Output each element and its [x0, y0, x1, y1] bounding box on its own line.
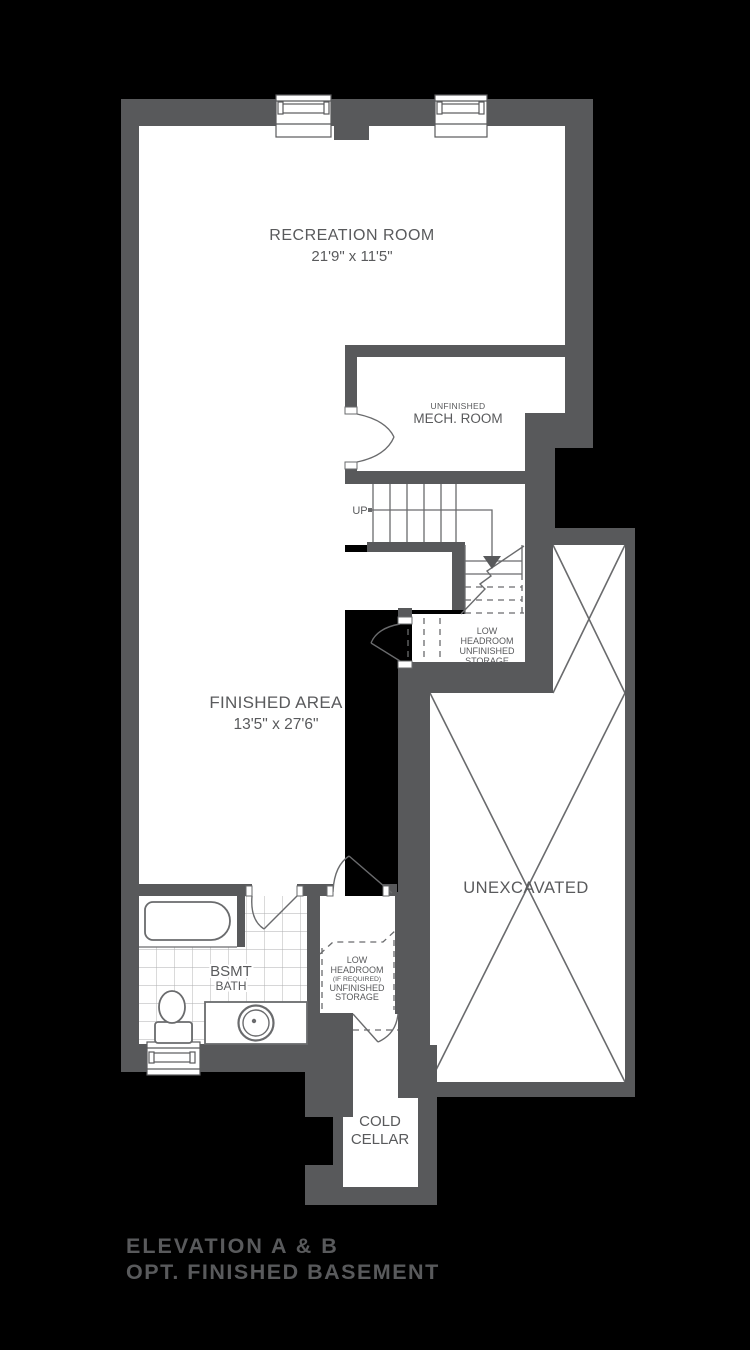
- wall-bath-right: [307, 884, 320, 1014]
- floorplan-page: RECREATION ROOM 21'9" x 11'5" UNFINISHED…: [0, 0, 750, 1350]
- wall-cold-left-block: [305, 1013, 353, 1117]
- storage1-door-leaf: [371, 643, 400, 661]
- storage1-door-arc: [371, 624, 400, 643]
- wall-step-block: [525, 413, 593, 448]
- wall-strip-left: [525, 545, 553, 693]
- wall-left: [121, 99, 139, 1072]
- storage2-label-3: (IF REQUIRED): [333, 976, 381, 983]
- wall-tub-stub: [237, 894, 245, 947]
- storage1-label-2: HEADROOM: [460, 636, 513, 646]
- cold-cellar-label-1: COLD: [359, 1113, 401, 1130]
- window-icon-top-2: [435, 95, 487, 137]
- storage1-label-4: STORAGE: [465, 656, 509, 666]
- lower-stairs-area: [465, 545, 525, 614]
- wall-c: [452, 542, 465, 610]
- wall-mech-left-upper: [345, 345, 357, 414]
- wall-entry-right: [398, 1013, 430, 1048]
- storage1-label-3: UNFINISHED: [459, 646, 515, 656]
- mech-door-gap: [345, 414, 357, 462]
- wall-right-upper: [565, 99, 593, 448]
- wall-unexcavated-left: [398, 662, 430, 896]
- wall-unexcavated-bottom: [418, 1082, 635, 1097]
- toilet-bowl-icon: [159, 991, 185, 1023]
- sink-drain-icon: [252, 1019, 256, 1023]
- toilet-tank-icon: [155, 1022, 192, 1043]
- finished-area-pocket: [345, 552, 452, 610]
- recreation-room-dims: 21'9" x 11'5": [311, 248, 392, 265]
- plan-subtitle: OPT. FINISHED BASEMENT: [126, 1260, 440, 1284]
- title-block: ELEVATION A & B OPT. FINISHED BASEMENT: [126, 1234, 440, 1284]
- bath-label-1: BSMT: [210, 963, 252, 980]
- storage1-label-1: LOW: [477, 626, 498, 636]
- mech-room-label-1: UNFINISHED: [431, 401, 486, 411]
- storage2-label-1: LOW: [347, 955, 368, 965]
- cold-cellar-label-2: CELLAR: [351, 1131, 410, 1148]
- storage2-label-5: STORAGE: [335, 992, 379, 1002]
- stair-hall-area: [345, 484, 525, 545]
- finished-area-dims: 13'5" x 27'6": [233, 716, 318, 733]
- wall-chimney-notch: [334, 126, 369, 140]
- finished-area-label: FINISHED AREA: [209, 693, 343, 712]
- sink-basin-icon: [243, 1010, 269, 1036]
- wall-strip-top: [525, 528, 635, 545]
- plan-title: ELEVATION A & B: [126, 1234, 339, 1258]
- window-icon-top-1: [276, 95, 331, 137]
- wall-cold-bottom: [332, 1187, 437, 1205]
- wall-storage2-right: [395, 892, 430, 1014]
- wall-rec-mech-separator: [345, 345, 593, 357]
- wall-bath-top-left: [139, 884, 252, 896]
- wall-unexcavated-top: [430, 676, 553, 693]
- wall-right-lower: [625, 528, 635, 1097]
- wall-top: [121, 99, 593, 126]
- mech-room-label-2: MECH. ROOM: [413, 411, 502, 426]
- window-icon-bath: [147, 1042, 200, 1075]
- up-label: UP: [352, 505, 367, 517]
- recreation-room-label: RECREATION ROOM: [269, 227, 434, 244]
- wall-b: [367, 542, 462, 552]
- bath-label-2: BATH: [215, 979, 246, 993]
- storage2-label-2: HEADROOM: [330, 965, 383, 975]
- finished-area: [139, 345, 345, 896]
- floorplan-drawing: RECREATION ROOM 21'9" x 11'5" UNFINISHED…: [0, 0, 750, 1350]
- unexcavated-label: UNEXCAVATED: [463, 879, 589, 897]
- wall-mech-bottom: [345, 471, 527, 484]
- bathtub-icon: [145, 902, 230, 940]
